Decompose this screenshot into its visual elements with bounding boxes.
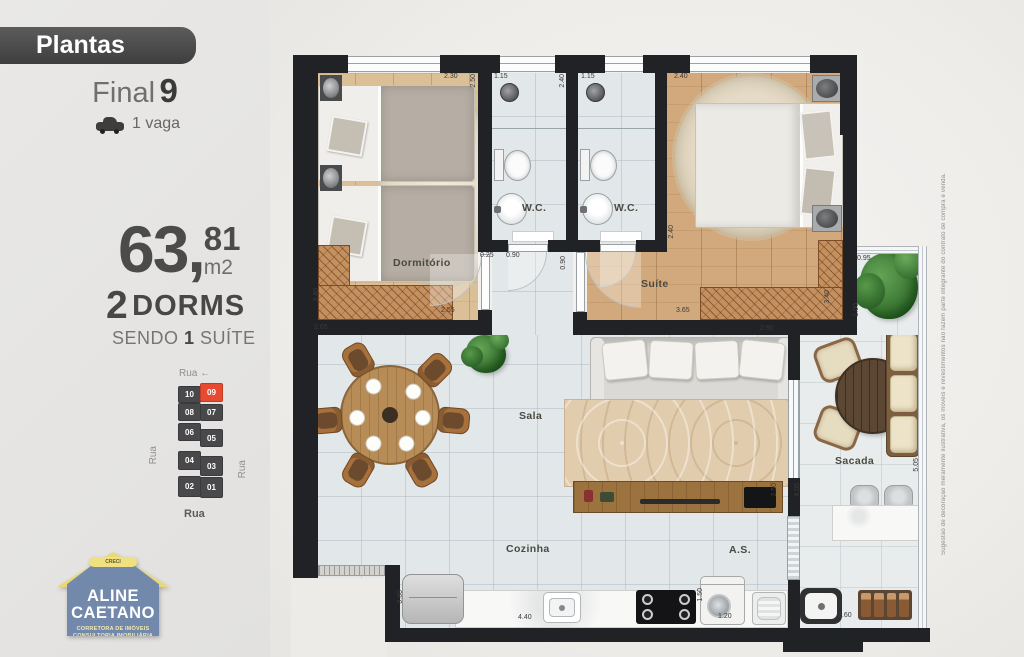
dim: 0.90 xyxy=(506,252,520,259)
wall xyxy=(478,310,492,335)
pillow xyxy=(800,109,837,160)
label-sala: Sala xyxy=(519,410,542,422)
dorms-number: 2 xyxy=(106,284,128,327)
door xyxy=(481,254,490,310)
logo-tagline-2: CONSULTORIA IMOBILIÁRIA xyxy=(67,633,159,640)
area-unit: m2 xyxy=(204,257,241,278)
plantas-badge: Plantas xyxy=(0,27,196,64)
sofa-pillow xyxy=(601,339,649,381)
bar-counter xyxy=(832,505,920,541)
wall xyxy=(788,335,800,380)
dim: 1.00 xyxy=(853,303,860,317)
dim: 2.40 xyxy=(674,73,688,80)
laundry-tank xyxy=(752,592,786,625)
dorms-label: DORMS xyxy=(132,290,245,322)
rua-left-label: Rua xyxy=(148,446,159,464)
wall xyxy=(840,55,857,135)
dim: 0.25 xyxy=(480,252,494,259)
exterior-mask xyxy=(291,578,387,657)
unit-09-highlighted: 09 xyxy=(201,384,222,401)
decor-item xyxy=(600,492,614,502)
dim: 2.90 xyxy=(760,325,774,332)
dim: 2.40 xyxy=(559,74,566,88)
wall xyxy=(573,312,587,335)
final-line: Final 9 xyxy=(60,72,210,110)
label-sacada: Sacada xyxy=(835,455,874,467)
label-wc2: W.C. xyxy=(614,202,638,214)
car-icon xyxy=(96,122,124,131)
dim: 2.40 xyxy=(668,225,675,239)
disclaimer-text: Sugestão de decoração meramente ilustrat… xyxy=(941,165,947,555)
dorms-line: 2 DORMS xyxy=(106,284,245,328)
dim: 3.40 xyxy=(824,290,831,304)
label-wc1: W.C. xyxy=(522,202,546,214)
balcony-railing xyxy=(918,246,927,628)
nightstand xyxy=(812,75,842,102)
dim: 5.05 xyxy=(913,458,920,472)
window xyxy=(690,56,810,72)
service-window xyxy=(787,516,800,580)
unit-08: 08 xyxy=(179,404,200,420)
unit-02: 02 xyxy=(179,477,200,496)
area-value: 63, xyxy=(118,218,204,281)
room-sacada-top xyxy=(857,253,920,335)
bathroom-sink xyxy=(582,193,613,225)
tv-rack xyxy=(573,481,783,513)
logo-name-1: ALINE xyxy=(67,588,159,605)
wall xyxy=(478,73,492,250)
room-sacada xyxy=(800,335,920,628)
centerpiece xyxy=(382,407,398,423)
unit-06: 06 xyxy=(179,424,200,440)
dim: 3.40 xyxy=(313,288,320,302)
balcony-railing xyxy=(857,246,920,254)
wall xyxy=(636,240,667,252)
plantas-label: Plantas xyxy=(36,31,125,59)
stove xyxy=(636,590,696,624)
nightstand-lamp xyxy=(320,165,342,191)
dim: 2.50 xyxy=(771,483,778,497)
door xyxy=(508,244,548,252)
dim: 0.60 xyxy=(397,590,404,604)
bottle-rack xyxy=(858,590,912,620)
soundbar xyxy=(640,499,720,504)
logo-name-2: CAETANO xyxy=(67,605,159,622)
dim: 1.15 xyxy=(494,73,508,80)
unit-05: 05 xyxy=(201,430,222,446)
dining-chair xyxy=(437,406,471,435)
window xyxy=(500,56,555,72)
dim: 1.15 xyxy=(581,73,595,80)
area-block: 63, 81 m2 xyxy=(118,218,240,281)
logo-house-body: ALINE CAETANO CORRETORA DE IMÓVEIS CONSU… xyxy=(67,566,159,636)
sendo-number: 1 xyxy=(184,328,195,348)
dim: 4.40 xyxy=(518,614,532,621)
window xyxy=(348,56,440,72)
sofa-pillow xyxy=(694,340,740,380)
flyer-canvas: Plantas Final 9 1 vaga 63, 81 m2 2 DORMS… xyxy=(0,0,1024,657)
plant xyxy=(466,335,506,373)
unit-03: 03 xyxy=(201,457,222,475)
unit-01: 01 xyxy=(201,478,222,497)
dim: 1.20 xyxy=(718,613,732,620)
decor-item xyxy=(584,490,593,502)
shower-head xyxy=(500,83,519,102)
wall xyxy=(293,55,348,73)
rua-top-label: Rua ← xyxy=(179,368,210,379)
wall xyxy=(783,628,863,652)
toilet-bowl xyxy=(504,150,531,181)
logo-tagline-1: CORRETORA DE IMÓVEIS xyxy=(67,626,159,633)
dim: 2.65 xyxy=(314,324,328,331)
kitchen-sink xyxy=(543,592,581,623)
room-wc1 xyxy=(492,73,566,248)
toilet xyxy=(494,149,504,181)
dim: 0.90 xyxy=(560,256,567,270)
wall xyxy=(555,55,605,73)
fridge xyxy=(402,574,464,624)
rua-right-label: Rua xyxy=(237,460,248,478)
label-as: A.S. xyxy=(729,544,751,556)
dim: 2.55 xyxy=(441,307,455,314)
wall xyxy=(293,55,318,578)
wall xyxy=(655,73,667,250)
final-label: Final xyxy=(92,77,155,109)
sofa-pillow xyxy=(738,339,786,381)
room-wc2 xyxy=(578,73,655,248)
plant xyxy=(860,253,918,319)
label-dormitorio: Dormitório xyxy=(393,257,451,269)
dining-chair xyxy=(318,406,343,435)
nightstand-lamp xyxy=(320,75,342,101)
window xyxy=(605,56,643,72)
door xyxy=(600,244,636,252)
dim: 4.05 xyxy=(794,483,801,497)
balcony-glass-door xyxy=(788,380,800,478)
logo-creci-ribbon: CRECI xyxy=(89,557,137,567)
dim: 2.30 xyxy=(444,73,458,80)
room-suite xyxy=(667,73,843,320)
dim: 0.95 xyxy=(857,255,871,262)
wardrobe xyxy=(700,287,843,320)
label-cozinha: Cozinha xyxy=(506,543,550,555)
toilet-bowl xyxy=(590,150,617,181)
dim: 1.50 xyxy=(697,588,704,602)
wall xyxy=(440,55,500,73)
rua-bottom-label: Rua xyxy=(184,508,205,520)
vaga-line: 1 vaga xyxy=(96,115,180,133)
wall xyxy=(548,240,600,252)
wall xyxy=(566,73,578,250)
low-wall-sill xyxy=(318,565,388,576)
living-rug xyxy=(564,399,788,487)
building-key-diagram: Rua ← Rua Rua Rua 10 09 08 07 06 05 04 0… xyxy=(155,368,285,533)
balcony-bench xyxy=(886,335,920,457)
unit-10: 10 xyxy=(179,387,200,402)
shower-head xyxy=(586,83,605,102)
unit-04: 04 xyxy=(179,452,200,469)
label-suite: Suíte xyxy=(641,278,669,290)
vaga-label: 1 vaga xyxy=(132,115,180,133)
wall xyxy=(587,320,857,335)
nightstand xyxy=(812,205,842,232)
final-number: 9 xyxy=(159,72,177,109)
shower-glass xyxy=(492,128,566,129)
balcony-sink xyxy=(800,588,842,624)
toilet xyxy=(580,149,590,181)
dim: 1.60 xyxy=(838,612,852,619)
dim: 2.50 xyxy=(470,74,477,88)
wall xyxy=(788,580,800,630)
area-decimals: 81 xyxy=(204,222,241,255)
unit-07: 07 xyxy=(201,405,222,420)
wall xyxy=(478,240,508,252)
sendo-line: SENDO 1 SUÍTE xyxy=(112,328,256,349)
shower-glass xyxy=(578,128,655,129)
dim: 3.65 xyxy=(676,307,690,314)
door xyxy=(576,252,585,312)
sofa-pillow xyxy=(648,340,694,380)
wall xyxy=(643,55,690,73)
aline-caetano-logo: ALINE CAETANO CORRETORA DE IMÓVEIS CONSU… xyxy=(56,549,170,644)
